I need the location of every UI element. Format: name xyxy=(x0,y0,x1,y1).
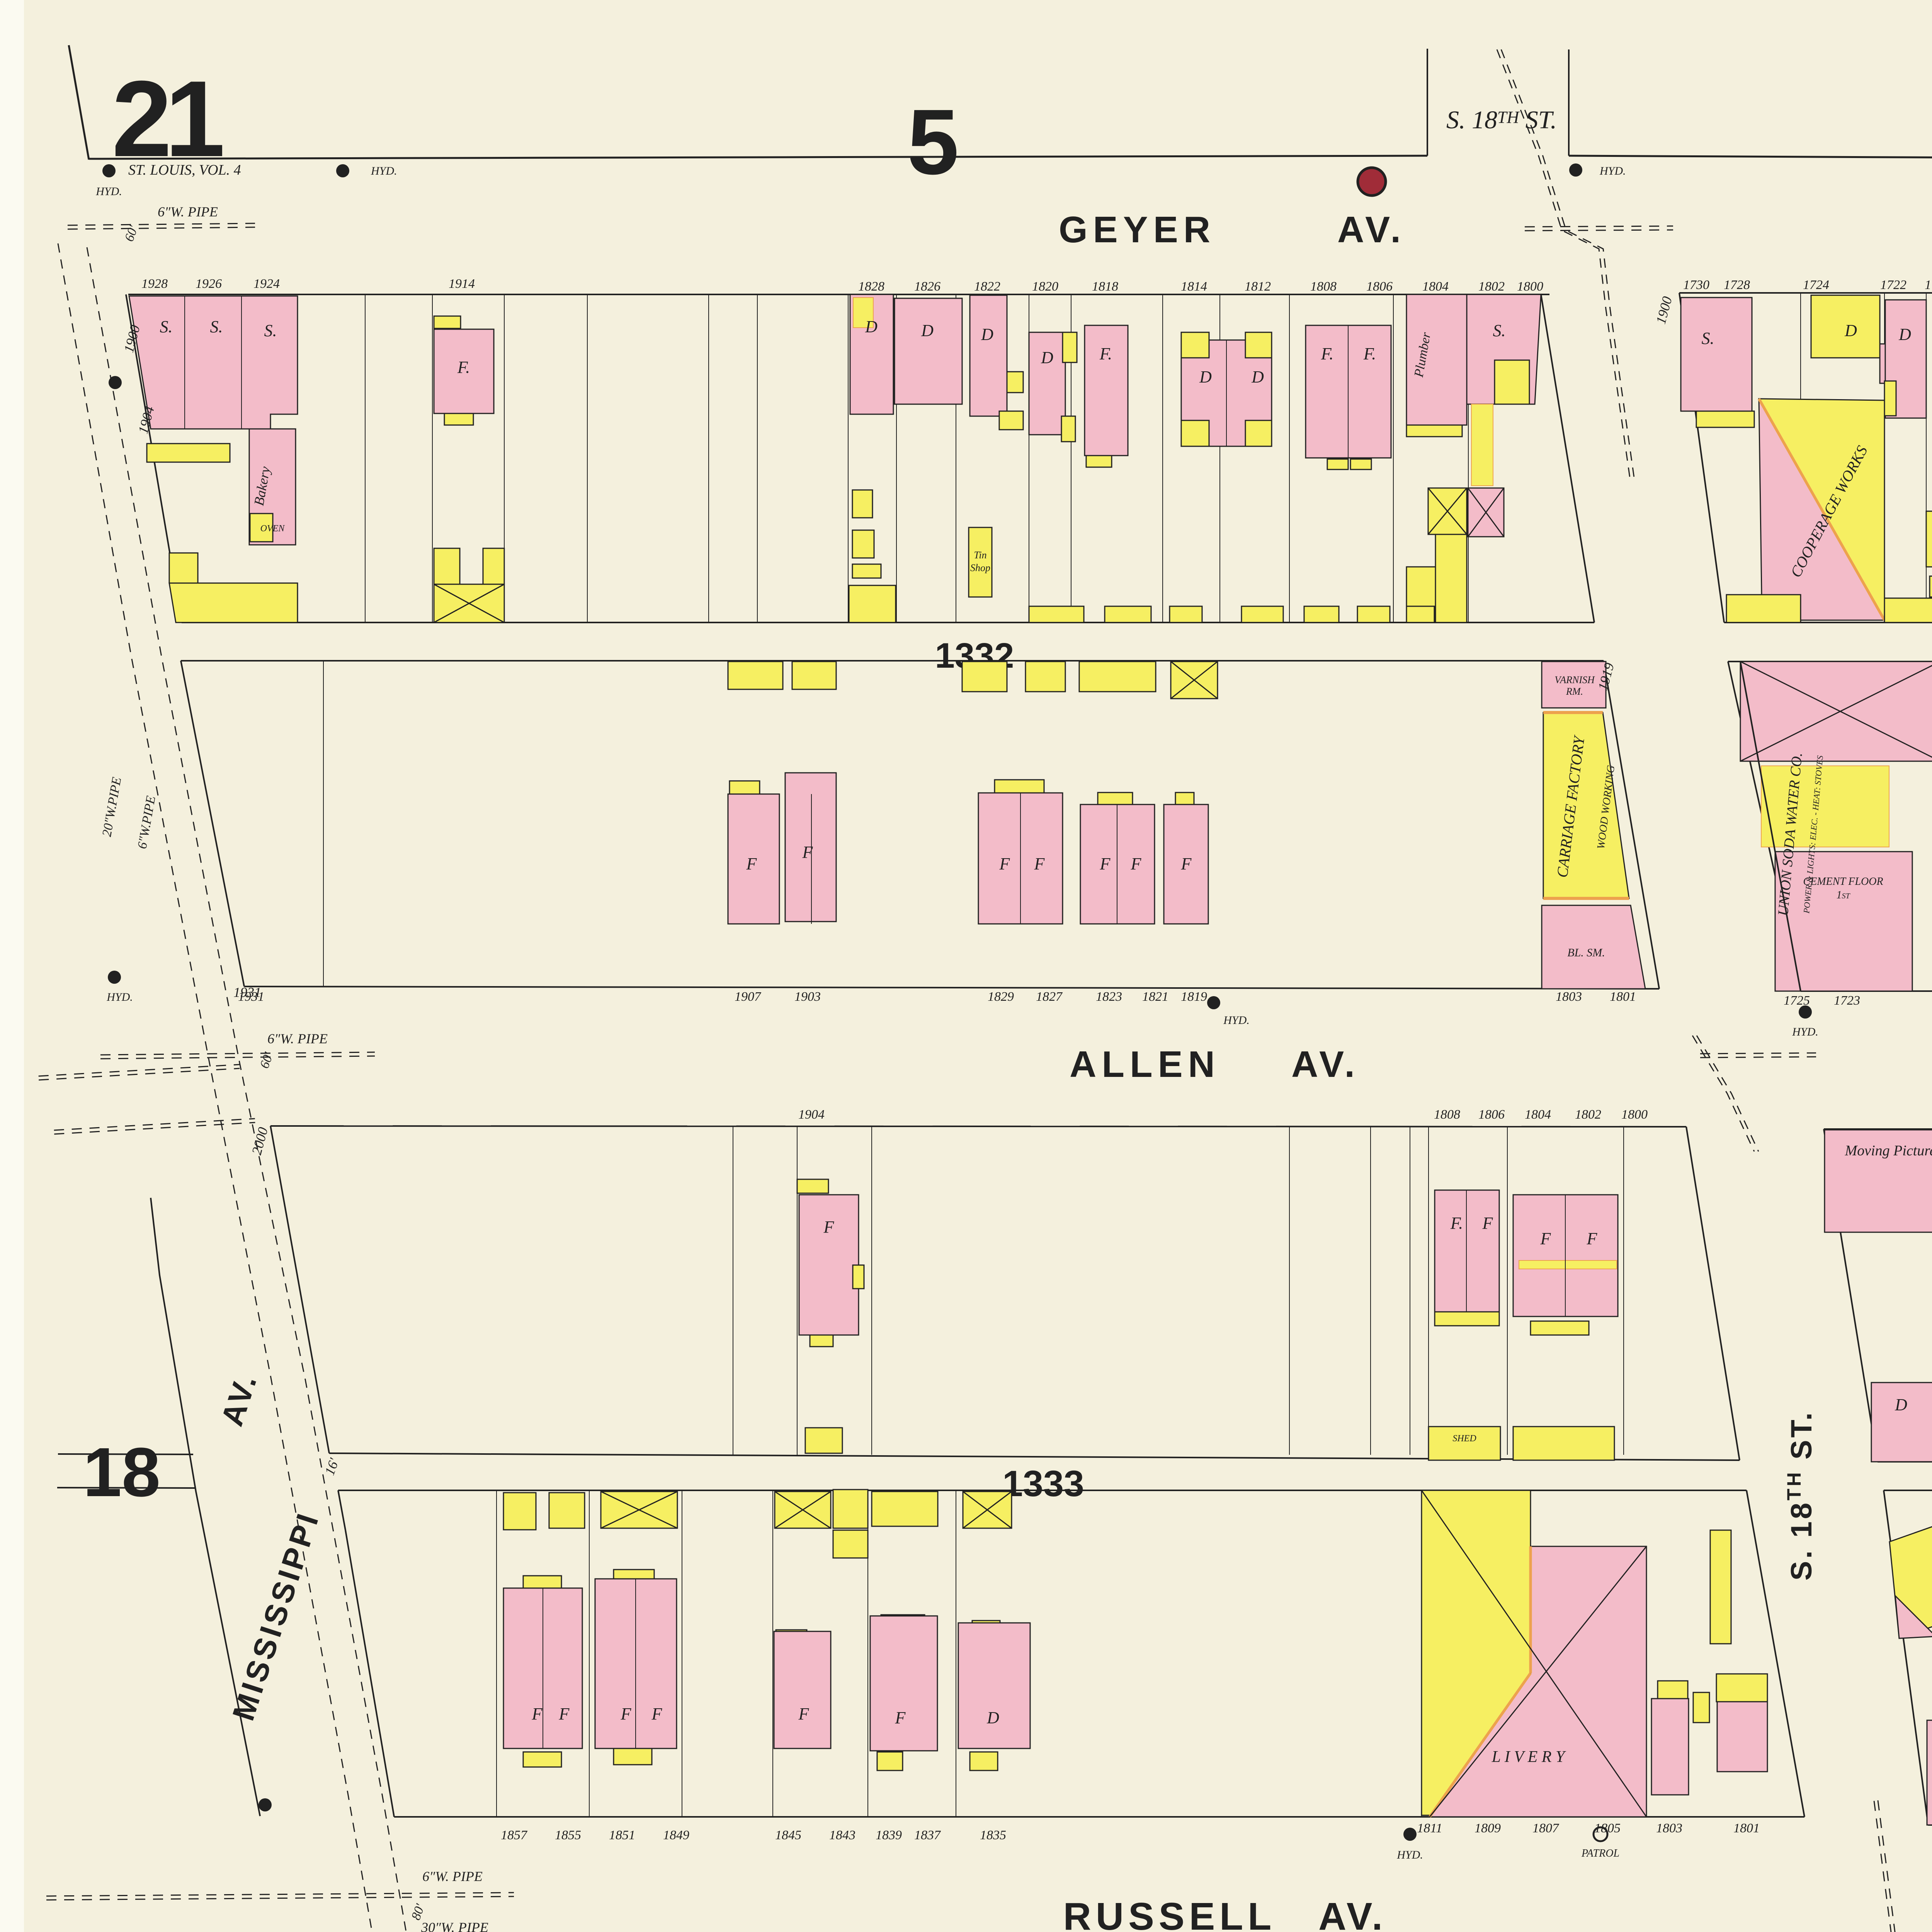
svg-text:1822: 1822 xyxy=(974,279,1000,294)
svg-text:F: F xyxy=(1482,1214,1493,1233)
svg-text:F: F xyxy=(651,1704,663,1723)
svg-text:S.: S. xyxy=(1702,329,1714,348)
svg-text:1802: 1802 xyxy=(1575,1107,1601,1122)
svg-text:1843: 1843 xyxy=(829,1828,855,1842)
svg-text:F.: F. xyxy=(1321,344,1333,363)
svg-text:HYD.: HYD. xyxy=(1599,165,1626,177)
svg-text:1805: 1805 xyxy=(1594,1821,1621,1835)
svg-text:18: 18 xyxy=(83,1434,160,1511)
svg-text:D: D xyxy=(1041,348,1053,367)
svg-text:RM.: RM. xyxy=(1566,686,1583,697)
svg-text:1821: 1821 xyxy=(1142,990,1168,1004)
svg-text:ST. LOUIS, VOL. 4: ST. LOUIS, VOL. 4 xyxy=(128,162,241,178)
svg-text:1855: 1855 xyxy=(555,1828,581,1842)
svg-text:D: D xyxy=(986,1708,999,1727)
svg-text:F: F xyxy=(823,1218,835,1236)
svg-text:S.: S. xyxy=(264,321,277,340)
svg-text:S.: S. xyxy=(210,317,223,336)
svg-text:1811: 1811 xyxy=(1417,1821,1442,1835)
svg-text:1851: 1851 xyxy=(609,1828,635,1842)
svg-text:F: F xyxy=(1100,854,1111,873)
svg-text:F: F xyxy=(1587,1229,1598,1248)
svg-text:F: F xyxy=(1034,854,1045,873)
svg-text:Moving Pictures: Moving Pictures xyxy=(1845,1143,1932,1159)
svg-text:6″W. PIPE: 6″W. PIPE xyxy=(422,1869,483,1884)
svg-text:F: F xyxy=(999,854,1010,873)
svg-text:D: D xyxy=(1898,325,1911,344)
svg-text:HYD.: HYD. xyxy=(1792,1026,1818,1038)
svg-text:1800: 1800 xyxy=(1517,279,1543,294)
svg-text:1333: 1333 xyxy=(1002,1463,1084,1504)
svg-text:F.: F. xyxy=(1099,344,1112,363)
svg-text:1809: 1809 xyxy=(1475,1821,1501,1835)
svg-text:1803: 1803 xyxy=(1656,1821,1682,1835)
svg-text:Shop: Shop xyxy=(970,562,990,573)
svg-text:F: F xyxy=(559,1704,570,1723)
svg-text:F.: F. xyxy=(457,358,470,377)
svg-text:D: D xyxy=(1844,321,1857,340)
svg-text:F: F xyxy=(1181,854,1192,873)
svg-text:SHED: SHED xyxy=(1452,1434,1476,1444)
svg-text:1803: 1803 xyxy=(1556,990,1582,1004)
svg-text:1823: 1823 xyxy=(1096,990,1122,1004)
svg-text:HYD.: HYD. xyxy=(1223,1014,1250,1027)
svg-text:1903: 1903 xyxy=(794,990,821,1004)
svg-text:F: F xyxy=(798,1704,810,1723)
svg-text:1845: 1845 xyxy=(775,1828,801,1842)
svg-text:F: F xyxy=(895,1708,906,1727)
svg-text:F: F xyxy=(621,1704,632,1723)
svg-text:1723: 1723 xyxy=(1834,993,1860,1008)
svg-text:1725: 1725 xyxy=(1784,993,1810,1008)
svg-text:1808: 1808 xyxy=(1434,1107,1460,1122)
svg-text:1807: 1807 xyxy=(1532,1821,1560,1835)
svg-text:1806: 1806 xyxy=(1366,279,1393,294)
svg-text:1720: 1720 xyxy=(1925,278,1932,292)
svg-text:PATROL: PATROL xyxy=(1581,1847,1619,1859)
svg-text:F.: F. xyxy=(1450,1214,1463,1233)
svg-text:1928: 1928 xyxy=(141,277,168,291)
svg-text:CEMENT FLOOR: CEMENT FLOOR xyxy=(1803,876,1883,888)
svg-text:HYD.: HYD. xyxy=(106,991,133,1003)
svg-text:RUSSELL: RUSSELL xyxy=(1063,1895,1276,1932)
svg-text:6″W. PIPE: 6″W. PIPE xyxy=(158,204,218,219)
svg-text:1827: 1827 xyxy=(1036,990,1063,1004)
svg-text:Tin: Tin xyxy=(974,549,986,561)
svg-text:1914: 1914 xyxy=(449,277,475,291)
svg-text:D: D xyxy=(1199,367,1212,386)
svg-text:1818: 1818 xyxy=(1092,279,1118,294)
svg-text:1801: 1801 xyxy=(1733,1821,1760,1835)
svg-text:BL. SM.: BL. SM. xyxy=(1567,946,1605,959)
svg-text:1812: 1812 xyxy=(1245,279,1271,294)
svg-text:30″W. PIPE: 30″W. PIPE xyxy=(421,1920,488,1932)
svg-text:1819: 1819 xyxy=(1181,990,1207,1004)
svg-text:L I V E R Y: L I V E R Y xyxy=(1492,1748,1566,1766)
svg-text:1924: 1924 xyxy=(253,277,280,291)
svg-text:21: 21 xyxy=(112,59,222,179)
svg-text:1835: 1835 xyxy=(980,1828,1006,1842)
svg-text:HYD.: HYD. xyxy=(1396,1849,1423,1861)
svg-text:S.: S. xyxy=(1493,321,1506,340)
svg-text:1806: 1806 xyxy=(1478,1107,1505,1122)
svg-text:AV.: AV. xyxy=(1337,209,1405,250)
svg-text:1926: 1926 xyxy=(196,277,222,291)
svg-text:1802: 1802 xyxy=(1478,279,1505,294)
svg-text:OVEN: OVEN xyxy=(260,524,286,534)
svg-text:1804: 1804 xyxy=(1525,1107,1551,1122)
svg-text:HYD.: HYD. xyxy=(371,165,397,177)
svg-text:1839: 1839 xyxy=(876,1828,902,1842)
svg-text:AV.: AV. xyxy=(1291,1044,1359,1085)
svg-text:1820: 1820 xyxy=(1032,279,1058,294)
svg-text:F: F xyxy=(746,854,757,873)
svg-text:D: D xyxy=(1251,367,1264,386)
svg-text:1931: 1931 xyxy=(233,985,261,1000)
svg-text:1826: 1826 xyxy=(914,279,940,294)
svg-text:ALLEN: ALLEN xyxy=(1070,1044,1220,1085)
svg-text:1724: 1724 xyxy=(1803,278,1829,292)
svg-text:F: F xyxy=(532,1704,543,1723)
svg-text:VARNISH: VARNISH xyxy=(1554,674,1595,685)
svg-text:D: D xyxy=(921,321,934,340)
svg-text:1829: 1829 xyxy=(988,990,1014,1004)
svg-text:F: F xyxy=(1131,854,1142,873)
svg-text:HYD.: HYD. xyxy=(95,185,122,198)
svg-text:6″W. PIPE: 6″W. PIPE xyxy=(267,1031,328,1046)
svg-text:1800: 1800 xyxy=(1621,1107,1648,1122)
svg-text:GEYER: GEYER xyxy=(1059,209,1216,250)
svg-text:1722: 1722 xyxy=(1880,278,1906,292)
svg-text:F: F xyxy=(1540,1229,1551,1248)
svg-text:1849: 1849 xyxy=(663,1828,689,1842)
svg-text:1828: 1828 xyxy=(858,279,884,294)
svg-text:1857: 1857 xyxy=(501,1828,528,1842)
svg-text:AV.: AV. xyxy=(1318,1895,1386,1932)
svg-text:1907: 1907 xyxy=(735,990,762,1004)
svg-text:1808: 1808 xyxy=(1310,279,1337,294)
svg-text:F.: F. xyxy=(1363,344,1376,363)
svg-text:1728: 1728 xyxy=(1724,278,1750,292)
svg-text:1837: 1837 xyxy=(914,1828,941,1842)
svg-text:1801: 1801 xyxy=(1610,990,1636,1004)
svg-text:1804: 1804 xyxy=(1422,279,1449,294)
svg-text:1730: 1730 xyxy=(1683,278,1709,292)
svg-text:S.: S. xyxy=(160,317,173,336)
svg-text:D: D xyxy=(865,317,878,336)
svg-text:1814: 1814 xyxy=(1181,279,1207,294)
svg-text:5: 5 xyxy=(907,90,959,194)
svg-text:D: D xyxy=(981,325,993,344)
svg-text:1904: 1904 xyxy=(798,1107,825,1122)
svg-text:D: D xyxy=(1895,1395,1907,1414)
